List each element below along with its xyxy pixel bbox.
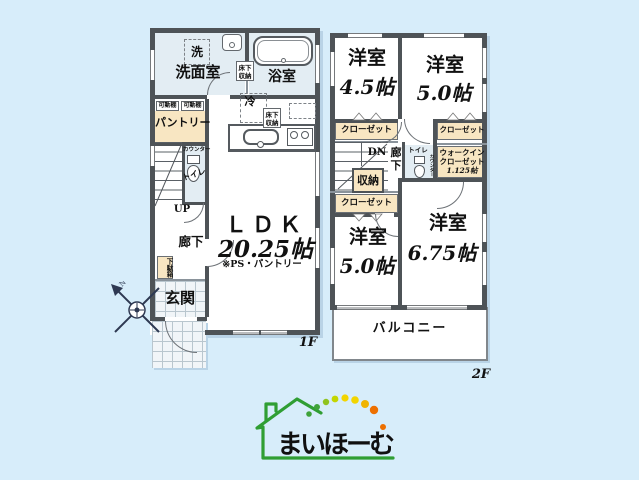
walkin-label-1: ウォークイン <box>438 149 486 157</box>
closet-nw-label: クローゼット <box>336 126 397 135</box>
window <box>337 305 391 310</box>
window <box>261 330 287 335</box>
window <box>482 252 487 285</box>
shoe-cabinet-box: 下駄箱 <box>157 256 173 279</box>
window <box>407 305 467 310</box>
washbasin-drain-icon <box>229 42 235 48</box>
window <box>424 33 464 38</box>
burner-icon <box>290 131 298 139</box>
hallway-label: 廊下 <box>176 235 206 249</box>
shelf-box: 可動棚 <box>156 101 179 111</box>
floor-plan-canvas: 洗 床下収納 可動棚 可動棚 冷 床下収納 下駄箱 洗面室 浴室 パントリー カ… <box>0 0 639 480</box>
room-ne-label: 洋室 <box>412 55 478 76</box>
window <box>482 48 487 78</box>
window <box>315 152 320 196</box>
laundry-label: 洗 <box>191 45 203 59</box>
window <box>233 330 259 335</box>
underfloor-storage-box: 床下収納 <box>263 108 281 128</box>
room-se-size: 6.75帖 <box>404 242 480 264</box>
window <box>348 33 382 38</box>
underfloor-storage-label: 床下収納 <box>239 64 252 80</box>
room-se-label: 洋室 <box>418 213 478 234</box>
room-nw-label: 洋室 <box>336 48 398 69</box>
closet-door-chevrons <box>446 112 478 121</box>
window <box>482 84 487 112</box>
window <box>315 228 320 268</box>
floor2-label: 2F <box>468 368 494 382</box>
cupboard-space <box>289 103 316 119</box>
wall <box>205 266 209 317</box>
washroom-label: 洗面室 <box>158 64 238 81</box>
ldk-label: ＬＤＫ <box>225 213 305 237</box>
window <box>315 45 320 83</box>
stairs-down-label: DN <box>366 147 388 159</box>
room-nw-size: 4.5帖 <box>334 76 400 98</box>
room-ne-size: 5.0帖 <box>408 82 480 104</box>
bathtub-drain-icon <box>281 58 286 63</box>
closet-ne-label: クローゼット <box>438 126 486 134</box>
room-sw-label: 洋室 <box>336 227 400 248</box>
wall <box>155 95 207 99</box>
logo-wordmark: まいほーむ <box>277 424 392 461</box>
compass-icon: N <box>108 281 166 339</box>
shelf-label: 可動棚 <box>183 102 201 109</box>
shelf-box: 可動棚 <box>181 101 204 111</box>
faucet-icon <box>257 141 264 148</box>
underfloor-storage-box: 床下収納 <box>236 61 254 81</box>
walkin-label-2: クローゼット <box>438 158 486 166</box>
closet-sw-label: クローゼット <box>336 199 397 208</box>
toilet-tank-icon <box>187 155 200 164</box>
closet-door-chevrons <box>352 112 384 121</box>
stairs-direction-line <box>153 140 185 210</box>
burner-icon <box>301 131 309 139</box>
pantry-label: パントリー <box>155 117 205 129</box>
washing-machine-icon: 洗 <box>184 39 210 65</box>
fridge-label: 冷 <box>243 96 257 108</box>
storage-box: 収納 <box>352 168 384 193</box>
storage-label: 収納 <box>357 174 379 187</box>
balcony-label: バルコニー <box>360 322 460 336</box>
counter2-label: カウンター <box>427 152 433 178</box>
ldk-note-label: ※PS・パントリー <box>222 260 302 270</box>
underfloor-storage-label: 床下収納 <box>266 111 279 127</box>
shelf-label: 可動棚 <box>158 102 176 109</box>
stairs-up-label: UP <box>171 204 193 215</box>
counter-label: カウンター <box>183 147 205 153</box>
walkin-size-label: 1.125帖 <box>438 167 486 175</box>
closet-line <box>437 143 487 145</box>
hallway2-label: 廊下 <box>389 146 403 172</box>
toilet-tank-icon <box>414 156 425 164</box>
room-sw-size: 5.0帖 <box>332 255 402 277</box>
window <box>150 50 155 80</box>
window <box>482 214 487 242</box>
wall <box>197 317 207 321</box>
entrance-label: 玄関 <box>160 290 200 307</box>
wall <box>150 28 320 33</box>
bathroom-label: 浴室 <box>252 70 312 85</box>
floor1-label: 1F <box>295 336 321 350</box>
